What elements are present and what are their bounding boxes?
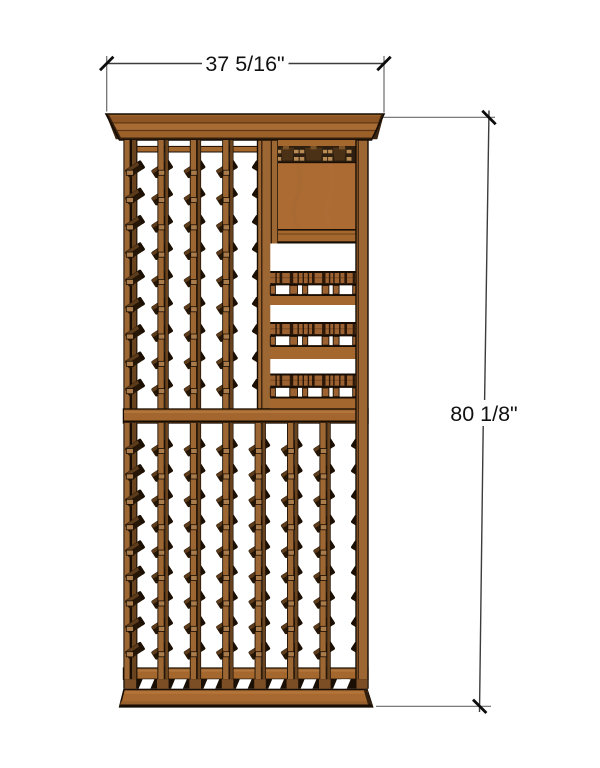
svg-text:80 1/8": 80 1/8" — [450, 402, 517, 426]
svg-text:37 5/16": 37 5/16" — [205, 52, 284, 76]
